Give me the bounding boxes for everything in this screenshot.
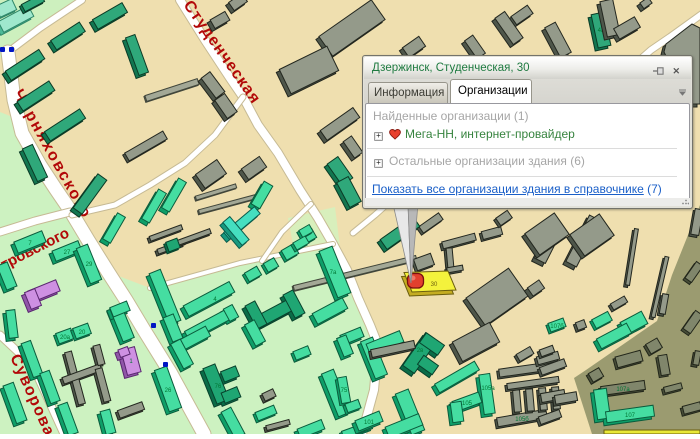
svg-text:76: 76 [215,384,222,390]
svg-text:105а: 105а [481,386,495,392]
svg-text:101: 101 [364,420,375,426]
svg-text:27: 27 [64,250,71,256]
svg-text:30: 30 [431,282,438,288]
svg-text:107: 107 [625,413,636,419]
svg-text:107а: 107а [616,387,630,393]
svg-text:29: 29 [86,262,93,268]
svg-text:20: 20 [79,330,86,336]
svg-text:107б: 107б [550,324,564,330]
svg-text:105б: 105б [515,417,529,423]
svg-text:26: 26 [165,388,172,394]
svg-text:75: 75 [341,388,348,394]
svg-text:105: 105 [462,401,473,407]
svg-text:20а: 20а [60,335,71,341]
svg-text:7а: 7а [330,270,337,276]
svg-text:2в: 2в [417,348,424,354]
